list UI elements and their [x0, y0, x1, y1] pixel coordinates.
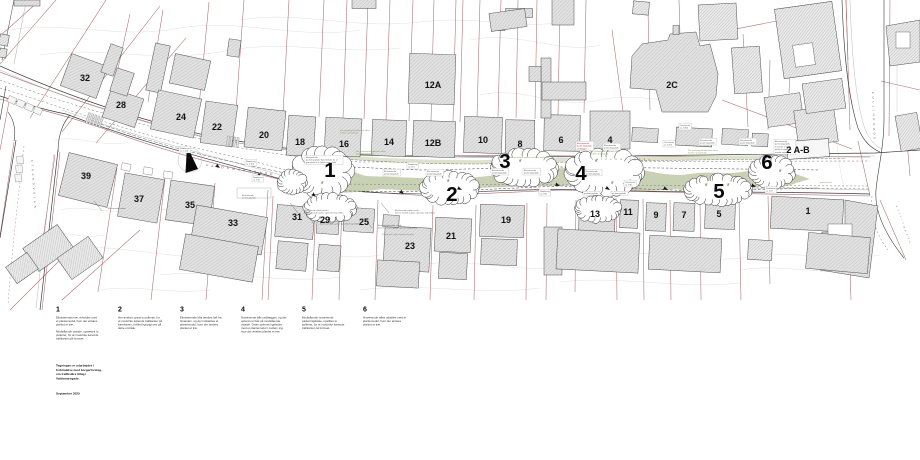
svg-text:6: 6 [558, 135, 563, 145]
svg-text:28: 28 [116, 100, 126, 110]
svg-text:hvor der ønskes plantet et træ: hvor der ønskes plantet et træ. [241, 330, 281, 334]
svg-text:parkeringsplads: parkeringsplads [584, 193, 598, 195]
svg-text:Eksisterende: Eksisterende [577, 142, 590, 145]
svg-text:39: 39 [81, 171, 91, 181]
svg-text:Overkørsel: Overkørsel [680, 124, 691, 127]
svg-text:6: 6 [761, 151, 772, 174]
svg-text:v a l d e m a r s g a d e: v a l d e m a r s g a d e [592, 158, 651, 161]
svg-text:trafikanter på fortovet.: trafikanter på fortovet. [302, 326, 330, 330]
svg-text:Valdemarsgade.: Valdemarsgade. [56, 376, 80, 380]
svg-text:ca 1:80: ca 1:80 [540, 194, 548, 196]
svg-text:11: 11 [623, 207, 633, 217]
svg-text:ca 1:50: ca 1:50 [253, 180, 261, 182]
svg-text:Strækning: Strækning [540, 190, 550, 193]
svg-text:Eksisterende udsat i punkt i: Eksisterende udsat i punkt i [304, 209, 329, 212]
svg-text:6: 6 [363, 307, 367, 314]
svg-text:parkeringsplads: parkeringsplads [384, 173, 399, 176]
svg-text:ca 1:250: ca 1:250 [664, 145, 673, 147]
svg-text:Eksisterende: Eksisterende [586, 170, 598, 173]
svg-text:plantet et træ.: plantet et træ. [363, 323, 381, 327]
svg-text:Parkeri 5 pl. bibeholdt: Parkeri 5 pl. bibeholdt [590, 153, 609, 156]
svg-text:5: 5 [716, 209, 721, 219]
svg-text:29: 29 [320, 215, 330, 225]
svg-text:ca 1:100: ca 1:100 [180, 151, 189, 153]
svg-text:giver lov mere: giver lov mere [820, 181, 832, 184]
svg-text:parkeringsplads: parkeringsplads [524, 172, 539, 175]
svg-text:Eksisterende: Eksisterende [306, 156, 318, 159]
svg-text:2 A-B: 2 A-B [786, 145, 810, 155]
svg-text:Parkeri 5 pl. bibeholdt: Parkeri 5 pl. bibeholdt [688, 152, 707, 155]
svg-text:Eksisterende: Eksisterende [427, 170, 440, 173]
svg-text:Strækning: Strækning [766, 187, 776, 190]
svg-text:Strækning: Strækning [408, 163, 418, 166]
svg-text:2: 2 [446, 183, 457, 206]
svg-text:Eksisterende: Eksisterende [384, 170, 397, 173]
svg-text:Eksisterende: Eksisterende [242, 194, 254, 197]
svg-text:23: 23 [405, 241, 415, 251]
svg-text:diverse anstalt e gulve i genn: diverse anstalt e gulve i gennele mop re… [378, 227, 417, 230]
svg-text:Nuv. parkering beholdes/red. a: Nuv. parkering beholdes/red. afkant [688, 149, 718, 152]
svg-text:1: 1 [324, 159, 335, 182]
svg-text:dette område.: dette område. [118, 326, 136, 330]
svg-text:19: 19 [501, 215, 511, 225]
svg-text:trafikanter på fortovet.: trafikanter på fortovet. [56, 337, 84, 341]
svg-text:parkeringsplads: parkeringsplads [577, 145, 592, 148]
svg-text:35: 35 [185, 200, 195, 210]
svg-text:9: 9 [653, 210, 658, 220]
svg-text:2C: 2C [666, 80, 678, 90]
svg-text:Eksisterende udsat i punkt i: Eksisterende udsat i punkt i [395, 209, 420, 212]
svg-text:4: 4 [241, 307, 245, 314]
svg-text:8: 8 [517, 139, 522, 149]
svg-text:10: 10 [478, 135, 488, 145]
svg-text:14: 14 [384, 137, 394, 147]
svg-text:parkeringsplads: parkeringsplads [740, 142, 755, 145]
svg-text:1: 1 [805, 206, 810, 216]
svg-text:ca 21.5: ca 21.5 [408, 167, 416, 169]
svg-text:3: 3 [499, 150, 510, 173]
svg-text:Parkeri 5 pl. bibeholdt: Parkeri 5 pl. bibeholdt [356, 153, 375, 156]
svg-text:Eksisterende: Eksisterende [775, 140, 788, 143]
svg-text:nedlægges: nedlægges [577, 148, 587, 150]
svg-text:diverse anstalt ni gulve i gen: diverse anstalt ni gulve i gennele mop r… [395, 212, 435, 215]
svg-text:parkeringsplads: parkeringsplads [586, 174, 600, 176]
svg-text:18: 18 [295, 137, 305, 147]
svg-text:ca 2.864: ca 2.864 [680, 128, 689, 130]
svg-text:16: 16 [339, 139, 349, 149]
svg-text:13: 13 [590, 209, 600, 219]
svg-text:20: 20 [259, 130, 269, 140]
svg-text:2: 2 [118, 307, 122, 314]
svg-text:parkeringsplads: parkeringsplads [612, 193, 626, 195]
svg-text:4: 4 [607, 135, 612, 145]
svg-text:Nuv. parkering beholdes/red. a: Nuv. parkering beholdes/red. afkant [340, 129, 370, 132]
svg-text:5: 5 [713, 180, 724, 203]
svg-text:32: 32 [80, 73, 90, 83]
svg-text:ca 1:100: ca 1:100 [246, 164, 255, 166]
svg-text:Strækning: Strækning [180, 147, 190, 150]
svg-text:4: 4 [575, 162, 587, 185]
svg-text:parkeringsplads: parkeringsplads [604, 147, 619, 150]
svg-text:7: 7 [681, 210, 686, 220]
svg-text:5: 5 [302, 307, 306, 314]
svg-text:Strækning: Strækning [246, 160, 256, 163]
svg-text:Parkeri 5 pl. bibeholdt: Parkeri 5 pl. bibeholdt [340, 132, 359, 135]
svg-text:31: 31 [292, 212, 302, 222]
svg-text:1: 1 [56, 307, 60, 314]
svg-text:Overkørsel: Overkørsel [664, 141, 675, 144]
svg-text:37: 37 [134, 194, 144, 204]
svg-text:Eksisterende: Eksisterende [740, 139, 753, 142]
svg-text:parkeringsplads: parkeringsplads [427, 173, 442, 176]
svg-text:Princip snit i vejst i samme h: Princip snit i vejst i samme hus plan [382, 233, 414, 236]
svg-text:Eksisterende udsat i: Eksisterende udsat i [108, 207, 127, 210]
svg-text:12B: 12B [425, 138, 442, 148]
svg-text:ca 1:86: ca 1:86 [625, 185, 633, 187]
svg-text:plantet et træ.: plantet et træ. [56, 323, 74, 327]
svg-text:Eksisterende: Eksisterende [524, 169, 537, 172]
svg-text:Strækning: Strækning [253, 176, 263, 179]
svg-text:12A: 12A [425, 80, 442, 90]
svg-text:24: 24 [176, 112, 186, 122]
svg-text:Overkørsel: Overkørsel [625, 181, 636, 184]
svg-text:ca 1:50: ca 1:50 [766, 191, 774, 193]
svg-text:Eksisterende udsat i punkt: Eksisterende udsat i punkt [378, 224, 402, 227]
svg-text:September 2025: September 2025 [56, 392, 80, 396]
svg-text:Eksisterende: Eksisterende [700, 139, 713, 142]
svg-text:25: 25 [359, 217, 369, 227]
svg-text:33: 33 [228, 218, 238, 228]
svg-text:Nuv. parkering beholdes/red. a: Nuv. parkering beholdes/red. afkant [590, 150, 620, 153]
svg-text:22: 22 [212, 122, 222, 132]
svg-text:3: 3 [180, 307, 184, 314]
svg-text:21: 21 [446, 231, 456, 241]
svg-text:Nuv. parkering beholdes/red. a: Nuv. parkering beholdes/red. afkant [356, 150, 386, 153]
svg-text:parkeringsplads: parkeringsplads [700, 142, 715, 145]
svg-text:plantet et træ.: plantet et træ. [180, 326, 198, 330]
